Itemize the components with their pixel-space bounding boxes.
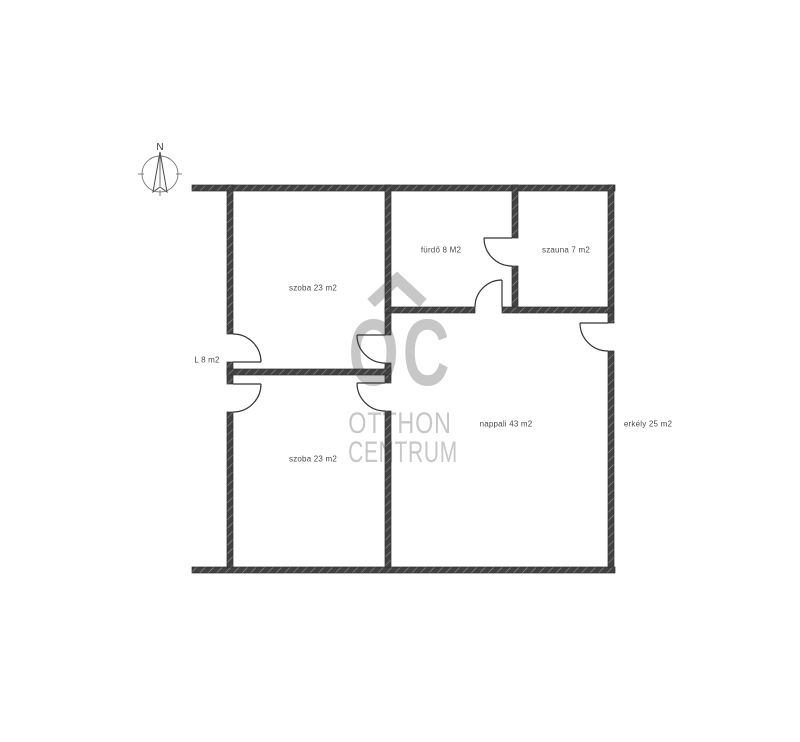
compass: N: [138, 142, 182, 196]
wall-bath-bottom-left: [385, 307, 475, 313]
floorplan-drawing: OC OTTHON CENTRUM: [0, 0, 800, 742]
wall-left-upper: [227, 185, 233, 334]
compass-north-label: N: [156, 142, 163, 153]
watermark-name-line2: CENTRUM: [348, 437, 458, 469]
door-szoba-lower-left: [233, 384, 261, 412]
wall-sauna-divider-upper: [512, 185, 518, 238]
wall-sauna-divider-lower: [512, 266, 518, 307]
room-label-szoba-upper: szoba 23 m2: [289, 284, 337, 293]
door-nappali: [580, 323, 608, 351]
wall-right-upper: [608, 185, 614, 323]
door-szoba-upper-left: [233, 334, 261, 362]
door-bathroom: [475, 280, 502, 307]
room-label-hall: L 8 m2: [194, 356, 219, 365]
door-sauna: [484, 238, 512, 266]
wall-bath-bottom-right: [502, 307, 613, 313]
wall-mid-lower: [385, 411, 391, 567]
wall-room-divider: [227, 369, 391, 375]
room-label-furdo: fürdő 8 M2: [421, 246, 461, 255]
floorplan-page: OC OTTHON CENTRUM: [0, 0, 800, 742]
wall-top: [192, 185, 615, 191]
wall-bottom: [192, 567, 615, 573]
room-label-nappali: nappali 43 m2: [480, 420, 533, 429]
room-label-szauna: szauna 7 m2: [542, 246, 590, 255]
watermark-name-line1: OTTHON: [348, 406, 451, 439]
room-label-erkely: erkély 25 m2: [624, 420, 672, 429]
wall-right-lower: [608, 351, 614, 567]
wall-left-lower: [227, 412, 233, 567]
room-label-szoba-lower: szoba 23 m2: [289, 455, 337, 464]
watermark-monogram: OC: [348, 300, 453, 406]
